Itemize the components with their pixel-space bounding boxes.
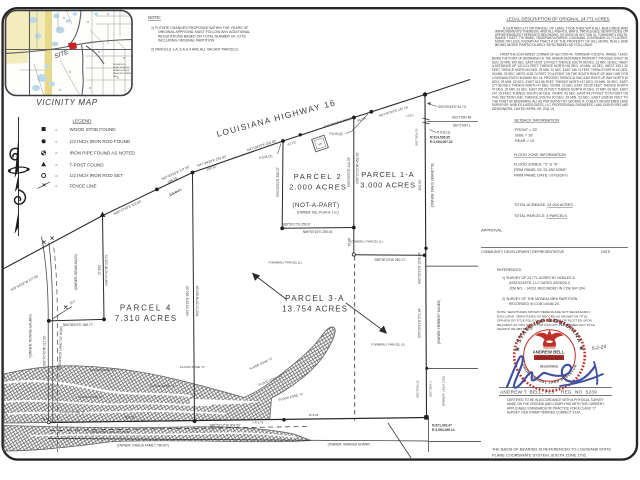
svg-text:S00°29'23"E 571.84': S00°29'23"E 571.84' <box>418 308 422 339</box>
svg-text:License No. 5239: License No. 5239 <box>536 356 562 360</box>
svg-text:FLOOD ZONE "A": FLOOD ZONE "A" <box>78 395 103 399</box>
svg-text:S89°50'23"W 250.71': S89°50'23"W 250.71' <box>374 258 405 262</box>
svg-text:THOMPSON: THOMPSON <box>113 64 126 66</box>
svg-text:3.000 ACRES: 3.000 ACRES <box>360 181 416 190</box>
svg-text:=: = <box>55 162 58 167</box>
svg-text:S00°29'23"E 1036.50': S00°29'23"E 1036.50' <box>418 252 422 284</box>
svg-text:2) PARCELS 1-A, 3-A & 4 ARE: 2) PARCELS 1-A, 3-A & 4 ARE ALL VACANT P… <box>151 48 239 52</box>
svg-text:FLOOD ZONES: "X" & "A": FLOOD ZONES: "X" & "A" <box>514 163 559 167</box>
svg-text:TOTAL PARCELS: 4 PARCELS: TOTAL PARCELS: 4 PARCELS <box>514 214 567 218</box>
svg-text:(1/2"): (1/2") <box>406 114 413 118</box>
svg-text:13.754 ACRES: 13.754 ACRES <box>282 305 348 314</box>
svg-text:ASSOCIATES, LLC DATED 04/25: ASSOCIATES, LLC DATED 04/25/20 3, <box>509 281 571 285</box>
svg-text:INCLUDING ORIGINAL PARTITION.: INCLUDING ORIGINAL PARTITION. <box>158 39 215 43</box>
svg-text:40.99': 40.99' <box>42 417 50 421</box>
svg-text:FLOOD ZONE "A": FLOOD ZONE "A" <box>90 368 115 372</box>
svg-text:FLOOD ZONE "A": FLOOD ZONE "A" <box>150 384 175 388</box>
svg-text:S89°52'17"W 904.50': S89°52'17"W 904.50' <box>209 423 240 427</box>
svg-text:N08°47'43"W 335.73': N08°47'43"W 335.73' <box>105 254 109 286</box>
svg-text:S02°47'43"W 311.05': S02°47'43"W 311.05' <box>43 335 47 366</box>
svg-text:FORMERLY PARCEL (1): FORMERLY PARCEL (1) <box>268 261 301 265</box>
svg-text:(OWNER: MLL PLAN A, LLC): (OWNER: MLL PLAN A, LLC) <box>297 211 339 215</box>
svg-text:LEGAL DESCRIPTION OF ORIGINAL: LEGAL DESCRIPTION OF ORIGINAL 24.771 ACR… <box>506 17 609 22</box>
svg-text:=: = <box>55 127 58 132</box>
svg-text:FLOOD ZONE INFORMATION: FLOOD ZONE INFORMATION <box>514 153 566 157</box>
svg-text:7.310 ACRES: 7.310 ACRES <box>115 314 178 323</box>
svg-text:(OWNER: KRAUS FAMILY TRUST): (OWNER: KRAUS FAMILY TRUST) <box>117 444 169 448</box>
svg-text:B=5.29': B=5.29' <box>309 413 319 417</box>
svg-text:DATE: DATE <box>601 250 611 254</box>
svg-text:2.000 ACRES: 2.000 ACRES <box>289 183 347 192</box>
svg-text:VICINITY MAP: VICINITY MAP <box>36 98 98 107</box>
svg-text:(OWNER: HERBERT McGEE): (OWNER: HERBERT McGEE) <box>437 300 441 345</box>
svg-text:FLOOD ZONE "X": FLOOD ZONE "X" <box>180 365 205 369</box>
svg-text:(OWNER: LEILA CSS): (OWNER: LEILA CSS) <box>442 376 446 406</box>
svg-text:SECTION 1: SECTION 1 <box>429 381 433 397</box>
svg-text:FORMERLY PARCEL (1): FORMERLY PARCEL (1) <box>349 240 382 244</box>
svg-text:S00°09'43"E 94.74': S00°09'43"E 94.74' <box>438 105 467 109</box>
svg-text:SECTION 1: SECTION 1 <box>453 124 471 128</box>
svg-text:NOTE:: NOTE: <box>148 15 161 20</box>
svg-text:FRONT = 25': FRONT = 25' <box>515 128 538 132</box>
svg-text:S00°29'23"E 308.27': S00°29'23"E 308.27' <box>276 167 280 198</box>
svg-text:SURVEY. RED STAMP VERIFIES CO: SURVEY. RED STAMP VERIFIES CORRECT PLAT. <box>507 411 581 415</box>
svg-text:REFERENCES:: REFERENCES: <box>497 268 522 272</box>
svg-text:P.O.B.(2): P.O.B.(2) <box>329 132 342 136</box>
svg-text:403.00': 403.00' <box>418 179 422 190</box>
svg-text:E:3,554,296.14: E:3,554,296.14 <box>432 428 455 432</box>
svg-text:N00°27'23"W 864.90: N00°27'23"W 864.90 <box>196 286 200 317</box>
svg-text:=: = <box>55 151 58 156</box>
svg-text:N84°55'02"E 188.77': N84°55'02"E 188.77' <box>63 323 94 327</box>
svg-text:PARCEL 2: PARCEL 2 <box>294 172 343 181</box>
svg-text:2) SURVEY OF THE MCNEAL MINI: 2) SURVEY OF THE MCNEAL MINI PARTITION <box>502 297 578 301</box>
svg-text:=: = <box>55 184 58 189</box>
svg-text:REGISTERED: REGISTERED <box>540 365 558 369</box>
svg-text:S00°29'23"E 864.90: S00°29'23"E 864.90 <box>186 286 190 316</box>
svg-text:FIRM PANEL DATE: 07/03/20-0: FIRM PANEL DATE: 07/03/20-0 <box>514 174 568 178</box>
svg-text:N89°50'17"E 250.6': N89°50'17"E 250.6' <box>282 223 311 227</box>
svg-text:COMMUNITY DEVELOPMENT REPRESEN: COMMUNITY DEVELOPMENT REPRESENTATIVE <box>481 250 565 254</box>
svg-text:SECTION 48: SECTION 48 <box>452 116 471 120</box>
svg-text:BEING MORE PARTICULARLY DESCRI: BEING MORE PARTICULARLY DESCRIBED AS FOL… <box>495 43 593 47</box>
svg-text:ANDREW T. BELL, PLS REG.: ANDREW T. BELL, PLS REG. NO. 5239 <box>500 390 597 395</box>
svg-text:27.905: 27.905 <box>98 265 102 275</box>
svg-text:BOARD HOUSE: BOARD HOUSE <box>113 69 130 72</box>
svg-text:=: = <box>55 173 58 178</box>
svg-text:TOTAL ACREAGE: 24.004 ACRES: TOTAL ACREAGE: 24.004 ACRES <box>514 203 573 207</box>
svg-text:THE BASIS OF BEARING IS REFERE: THE BASIS OF BEARING IS REFERENCED TO LO… <box>492 447 611 452</box>
svg-text:1-R-1.79': 1-R-1.79' <box>252 421 264 425</box>
svg-text:1) SURVEY OF 24.771 ACRES B: 1) SURVEY OF 24.771 ACRES BY NOBLES & <box>502 276 575 280</box>
svg-text:PARCEL 3-A: PARCEL 3-A <box>285 294 345 303</box>
svg-text:DOGWOOD LANE (32' ROW): DOGWOOD LANE (32' ROW) <box>90 430 130 434</box>
svg-text:N00°27'23"W 452.35': N00°27'23"W 452.35' <box>356 152 360 184</box>
svg-text:SECTION 31: SECTION 31 <box>415 128 419 146</box>
svg-text:SETBACK INFORMATION: SETBACK INFORMATION <box>514 119 559 123</box>
svg-text:REDEVELOPMENT: REDEVELOPMENT <box>113 73 133 75</box>
svg-text:=: = <box>55 139 58 144</box>
svg-text:IRON PIPE FOUND AS NOTED: IRON PIPE FOUND AS NOTED <box>70 151 136 156</box>
svg-text:T-POST FOUND: T-POST FOUND <box>70 162 105 167</box>
svg-text:(OWNER: RONNIE GAUDIN): (OWNER: RONNIE GAUDIN) <box>29 314 33 357</box>
svg-text:(OWNER: BRIAN BASS): (OWNER: BRIAN BASS) <box>74 254 78 290</box>
svg-text:904.50': 904.50' <box>125 416 136 420</box>
svg-text:FORMERLY PARCEL (2): FORMERLY PARCEL (2) <box>371 343 404 347</box>
svg-text:P.O.B.(1): P.O.B.(1) <box>437 131 450 135</box>
svg-text:1/2 INCH IRON ROD FOUND: 1/2 INCH IRON ROD FOUND <box>70 139 131 144</box>
svg-text:ROAD SCHOOL: ROAD SCHOOL <box>113 66 130 69</box>
svg-text:PARCEL 1-A: PARCEL 1-A <box>361 170 414 179</box>
svg-text:DESIGNERS, DATED APRIL 09, 20(: DESIGNERS, DATED APRIL 09, 20(1-3) <box>492 107 554 111</box>
svg-text:PARCEL 4: PARCEL 4 <box>120 304 172 313</box>
svg-text:UNIT: UNIT <box>113 76 119 78</box>
svg-text:FIRM PANEL ID: 22-05C0250F: FIRM PANEL ID: 22-05C0250F <box>514 168 567 172</box>
svg-text:E:3,694,087.22: E:3,694,087.22 <box>430 140 453 144</box>
svg-text:WOOD STOB FOUND: WOOD STOB FOUND <box>70 127 117 132</box>
svg-text:LEGEND: LEGEND <box>73 119 93 124</box>
svg-text:SIDE = 10': SIDE = 10' <box>515 134 533 138</box>
svg-text:RECORDED IN COB 14046/-20.: RECORDED IN COB 14046/-20. <box>509 302 560 306</box>
svg-text:1/2 INCH IRON ROD SET: 1/2 INCH IRON ROD SET <box>70 173 124 178</box>
svg-text:(NOT-A-PART): (NOT-A-PART) <box>292 202 339 209</box>
svg-text:76.76': 76.76' <box>348 237 352 246</box>
svg-text:N89°50'15"E 250.61': N89°50'15"E 250.61' <box>303 230 334 234</box>
svg-text:JOB NO. - 14203, RECORDED IN C: JOB NO. - 14203, RECORDED IN COB 647-204… <box>509 286 586 290</box>
svg-text:PLANE COORDINATE SYSTEM, SOUTH: PLANE COORDINATE SYSTEM, SOUTH ZONE 1702… <box>492 452 587 457</box>
svg-text:FLOOD ZONE "X": FLOOD ZONE "X" <box>60 410 85 414</box>
svg-text:FENCE LINE: FENCE LINE <box>70 184 97 189</box>
svg-text:(OWNER: AMANDA SHARP): (OWNER: AMANDA SHARP) <box>328 443 371 447</box>
svg-text:S00°29'23"E 442.35': S00°29'23"E 442.35' <box>347 157 351 188</box>
svg-text:(OWNER: DAVIS VERRETTE): (OWNER: DAVIS VERRETTE) <box>431 163 435 208</box>
svg-text:REAR = 10': REAR = 10' <box>515 139 535 143</box>
svg-text:APPROVAL:: APPROVAL: <box>481 228 503 233</box>
svg-text:SECTION 31: SECTION 31 <box>416 380 420 398</box>
svg-text:ANDREW BELL: ANDREW BELL <box>533 350 565 355</box>
